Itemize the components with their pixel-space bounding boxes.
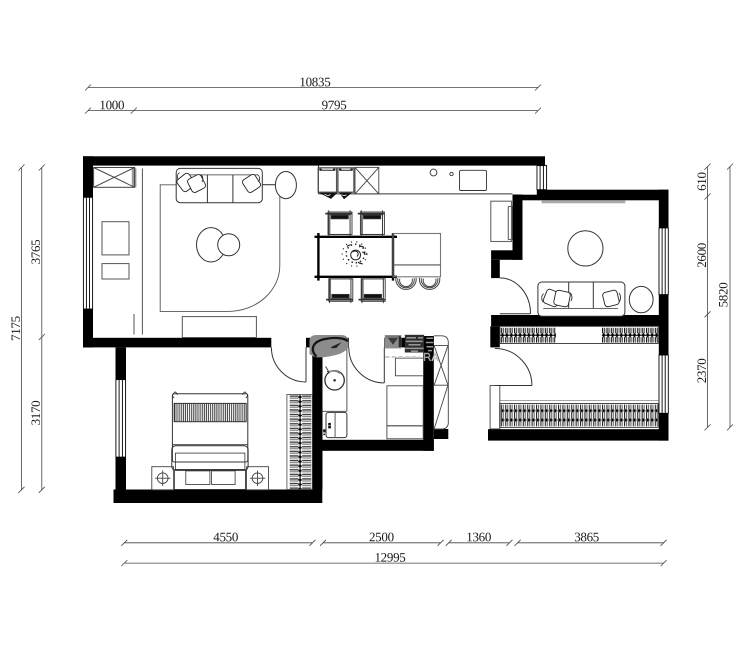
svg-text:3865: 3865 — [574, 529, 599, 544]
svg-text:9795: 9795 — [322, 97, 347, 112]
svg-text:5820: 5820 — [716, 283, 731, 308]
svg-text:610: 610 — [694, 172, 709, 191]
svg-text:2370: 2370 — [694, 358, 709, 383]
svg-text:7175: 7175 — [8, 316, 23, 341]
svg-text:10835: 10835 — [299, 74, 330, 89]
svg-text:2600: 2600 — [694, 243, 709, 268]
svg-text:3765: 3765 — [28, 240, 43, 265]
svg-text:12995: 12995 — [374, 550, 405, 565]
svg-text:3170: 3170 — [28, 401, 43, 426]
svg-text:1360: 1360 — [466, 529, 491, 544]
svg-text:4550: 4550 — [213, 529, 238, 544]
svg-text:2500: 2500 — [369, 529, 394, 544]
svg-text:1000: 1000 — [99, 97, 124, 112]
